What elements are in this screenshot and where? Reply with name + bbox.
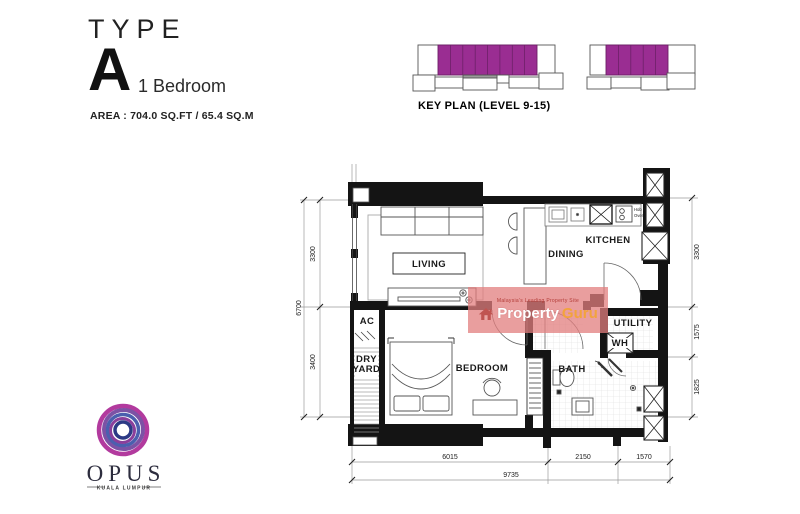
house-icon [478, 307, 494, 321]
dim-right-top: 3300 [694, 244, 701, 260]
opus-wordmark: OPUS [87, 461, 166, 486]
dining-furniture [509, 208, 547, 284]
bedroom-furniture [388, 338, 543, 415]
key-plan: KEY PLAN (LEVEL 9-15) [405, 25, 715, 117]
unit-subtitle: 1 Bedroom [138, 76, 226, 97]
opus-logo: OPUS KUALA LUMPUR [83, 390, 179, 506]
dim-bottom-1: 6015 [442, 454, 458, 461]
room-label-dining: DINING [548, 249, 584, 260]
floor-plan-page: TYPE A 1 Bedroom AREA : 704.0 SQ.FT / 65… [0, 0, 800, 514]
watermark-brand-property: Property [497, 305, 559, 322]
watermark-brand: PropertyGuru [478, 305, 598, 322]
unit-type-letter: A [88, 40, 131, 100]
unit-area: AREA : 704.0 SQ.FT / 65.4 SQ.M [90, 110, 254, 122]
key-plan-caption: KEY PLAN (LEVEL 9-15) [418, 100, 550, 112]
ac-dry-yard: AC DRY YARD [353, 316, 381, 435]
label-hob-line2: Oven [634, 213, 645, 218]
label-hob-line1: Hob & [634, 207, 646, 212]
dim-left-bottom: 3400 [310, 354, 317, 370]
room-label-yard: YARD [353, 364, 381, 375]
room-label-utility: UTILITY [614, 318, 653, 329]
dim-left-overall: 6700 [296, 300, 303, 316]
key-plan-right-building [587, 45, 695, 90]
dim-right-mid: 1575 [694, 324, 701, 340]
dim-right-bottom: 1825 [694, 379, 701, 395]
room-label-ac: AC [360, 316, 375, 327]
room-label-kitchen: KITCHEN [585, 235, 630, 246]
dim-bottom-2: 2150 [575, 454, 591, 461]
room-label-bath: BATH [558, 364, 585, 375]
title-block: TYPE A 1 Bedroom AREA : 704.0 SQ.FT / 65… [88, 14, 318, 45]
propertyguru-watermark: Malaysia's Leading Property Site Propert… [468, 287, 608, 333]
kitchen-fixtures [545, 204, 641, 226]
watermark-tagline: Malaysia's Leading Property Site [497, 298, 579, 304]
label-water-heater: WH [612, 338, 629, 349]
room-label-bedroom: BEDROOM [456, 363, 508, 374]
opus-city: KUALA LUMPUR [97, 486, 152, 492]
dim-bottom-3: 1570 [636, 454, 652, 461]
watermark-brand-guru: Guru [562, 305, 598, 322]
opus-rings-icon [99, 406, 147, 454]
key-plan-left-building [413, 45, 563, 91]
living-furniture [368, 207, 483, 306]
utility-fixtures: WH [607, 333, 633, 353]
room-label-living: LIVING [412, 259, 446, 270]
dim-bottom-total: 9735 [503, 472, 519, 479]
dim-left-top: 3300 [310, 246, 317, 262]
